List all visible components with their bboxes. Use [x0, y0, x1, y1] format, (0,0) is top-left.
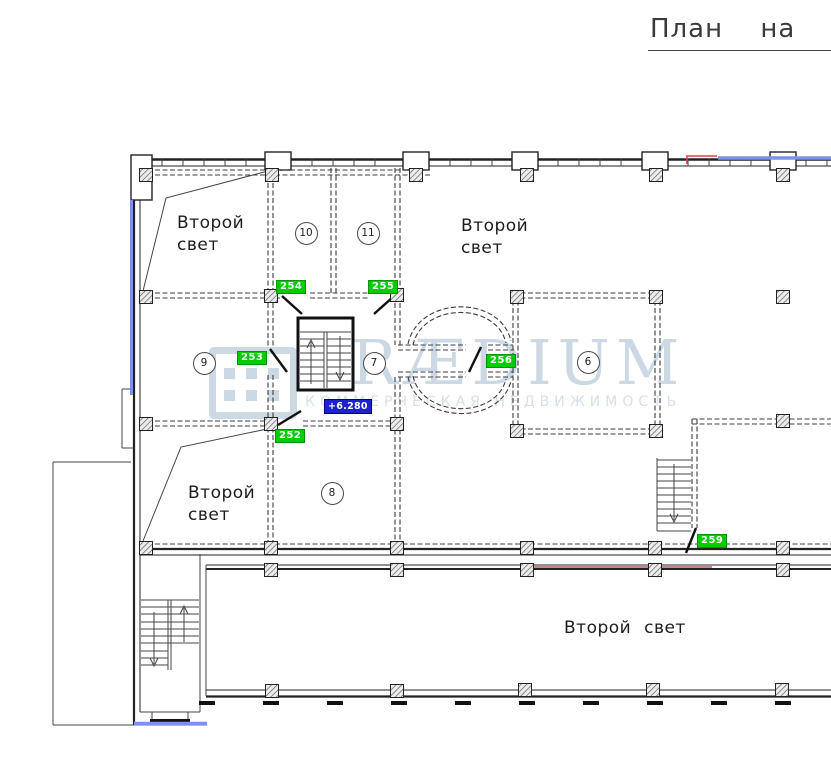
void-label-top-middle: Второйсвет: [461, 215, 528, 259]
top-wall: [140, 159, 831, 166]
window-sill: [711, 701, 727, 705]
window-sill: [327, 701, 343, 705]
column: [266, 169, 279, 182]
column: [391, 418, 404, 431]
column: [391, 542, 404, 555]
room-bubble-9: 9: [193, 352, 216, 375]
stair-lower-left: [141, 600, 199, 670]
column: [391, 564, 404, 577]
room-bubble-10: 10: [295, 222, 318, 245]
column: [519, 684, 532, 697]
void-label-bottom-corridor: Второй свет: [564, 617, 686, 639]
column: [266, 685, 279, 698]
stair-right: [657, 458, 691, 531]
plan-linework: [0, 0, 831, 768]
column: [777, 169, 790, 182]
column: [511, 291, 524, 304]
window-sill: [263, 701, 279, 705]
room-bubble-8: 8: [321, 482, 344, 505]
door-tag-253: 253: [237, 351, 267, 365]
room-bubble-11: 11: [357, 222, 380, 245]
door-tag-252: 252: [275, 429, 305, 443]
column: [140, 291, 153, 304]
column: [650, 425, 663, 438]
stair-core-main: [298, 318, 353, 390]
down-arrow-icon: [670, 464, 678, 522]
door-tag-259: 259: [697, 534, 727, 548]
window-sill: [647, 701, 663, 705]
column: [649, 542, 662, 555]
door-tag-256: 256: [486, 354, 516, 368]
exterior-walls: [53, 159, 831, 725]
column: [391, 685, 404, 698]
floor-plan-canvas: PRÆDIUM КОММЕРЧЕСКАЯ НЕДВИЖИМОСТЬ: [0, 0, 831, 768]
column: [511, 425, 524, 438]
column: [521, 169, 534, 182]
window-sill: [583, 701, 599, 705]
column: [265, 564, 278, 577]
void-label-top-left: Второйсвет: [177, 212, 244, 256]
column: [521, 542, 534, 555]
column: [777, 542, 790, 555]
window-sill: [519, 701, 535, 705]
column: [410, 169, 423, 182]
column: [777, 415, 790, 428]
red-marking: [527, 156, 717, 567]
column: [140, 542, 153, 555]
door-tag-255: 255: [368, 280, 398, 294]
column: [650, 169, 663, 182]
up-arrow-icon: [180, 606, 188, 642]
room-bubble-6: 6: [577, 351, 600, 374]
column: [647, 684, 660, 697]
column: [777, 291, 790, 304]
drawing-title: План на о: [648, 14, 831, 51]
column: [649, 564, 662, 577]
column: [140, 418, 153, 431]
column: [650, 291, 663, 304]
column: [140, 169, 153, 182]
window-sill: [775, 701, 791, 705]
window-sills: [199, 701, 791, 705]
terrace-outline: [53, 462, 207, 725]
column: [521, 564, 534, 577]
window-sill: [199, 701, 215, 705]
column: [265, 542, 278, 555]
left-pilaster: [122, 389, 134, 448]
window-sill: [455, 701, 471, 705]
window-sill: [391, 701, 407, 705]
elevation-mark: +6.280: [324, 399, 372, 414]
void-label-bottom-left: Второйсвет: [188, 482, 255, 526]
column: [776, 684, 789, 697]
room-bubble-7: 7: [363, 352, 386, 375]
column: [777, 564, 790, 577]
door-tag-254: 254: [276, 280, 306, 294]
